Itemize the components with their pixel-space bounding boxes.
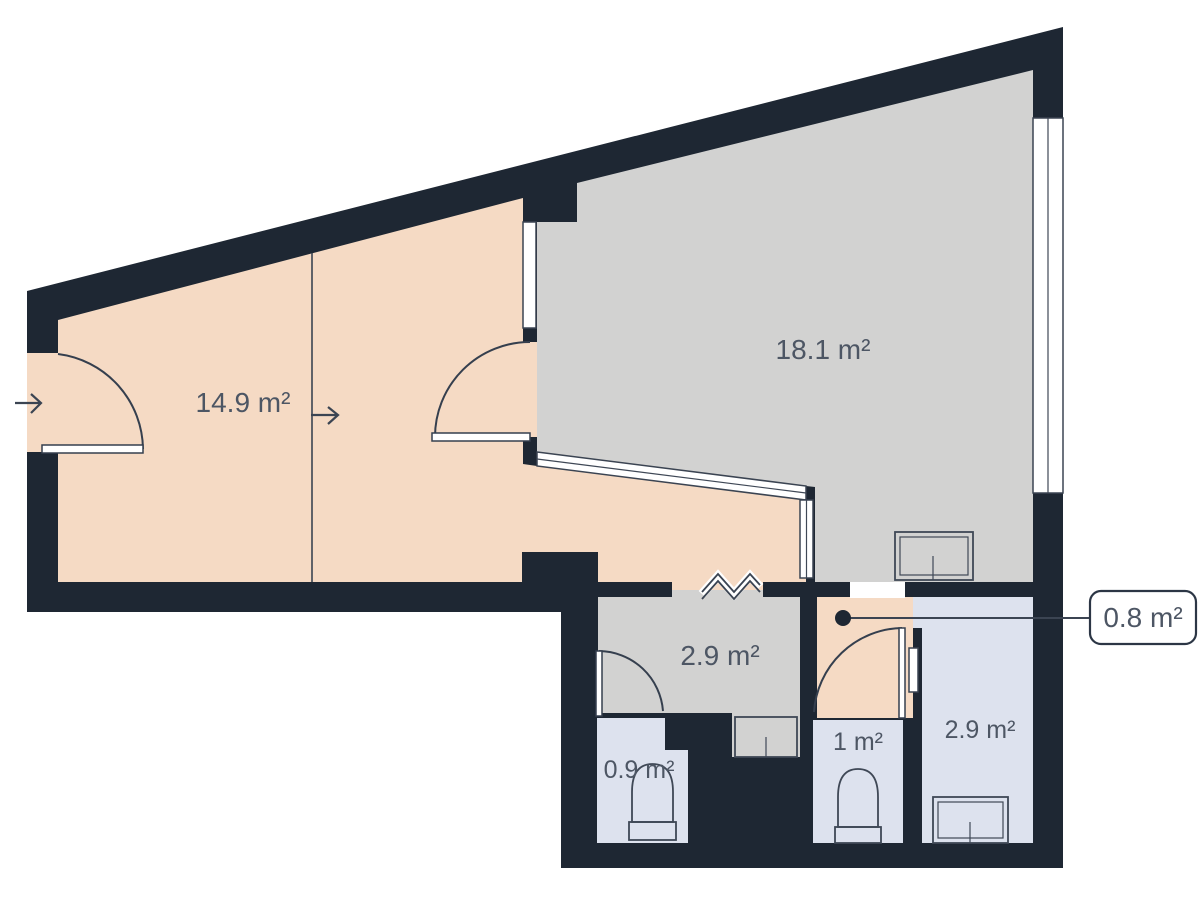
floor-plan-canvas: 14.9 m² 18.1 m² 2.9 m² 0.9 m² 1 m² 2.9 m… (0, 0, 1200, 902)
hallway-area-label: 2.9 m² (680, 640, 759, 671)
vestibule-area-label: 0.8 m² (1103, 602, 1182, 633)
wc-small-area-label: 0.9 m² (604, 756, 675, 784)
living-room-area-label: 18.1 m² (776, 334, 871, 365)
bedroom-area-label: 14.9 m² (196, 387, 291, 418)
window-slot-bathroom-icon (909, 648, 918, 692)
window-bedroom-living-icon (523, 222, 536, 328)
callout-dot (835, 610, 851, 626)
floor-plan: 14.9 m² 18.1 m² 2.9 m² 0.9 m² 1 m² 2.9 m… (0, 0, 1200, 902)
bathroom-area-label: 2.9 m² (945, 716, 1016, 744)
window-corridor-icon (800, 500, 813, 578)
wc-area-label: 1 m² (833, 728, 883, 756)
window-living-right-icon (1033, 118, 1063, 493)
opening-threshold-hallway-side (672, 590, 763, 597)
passage-opening (850, 582, 905, 598)
